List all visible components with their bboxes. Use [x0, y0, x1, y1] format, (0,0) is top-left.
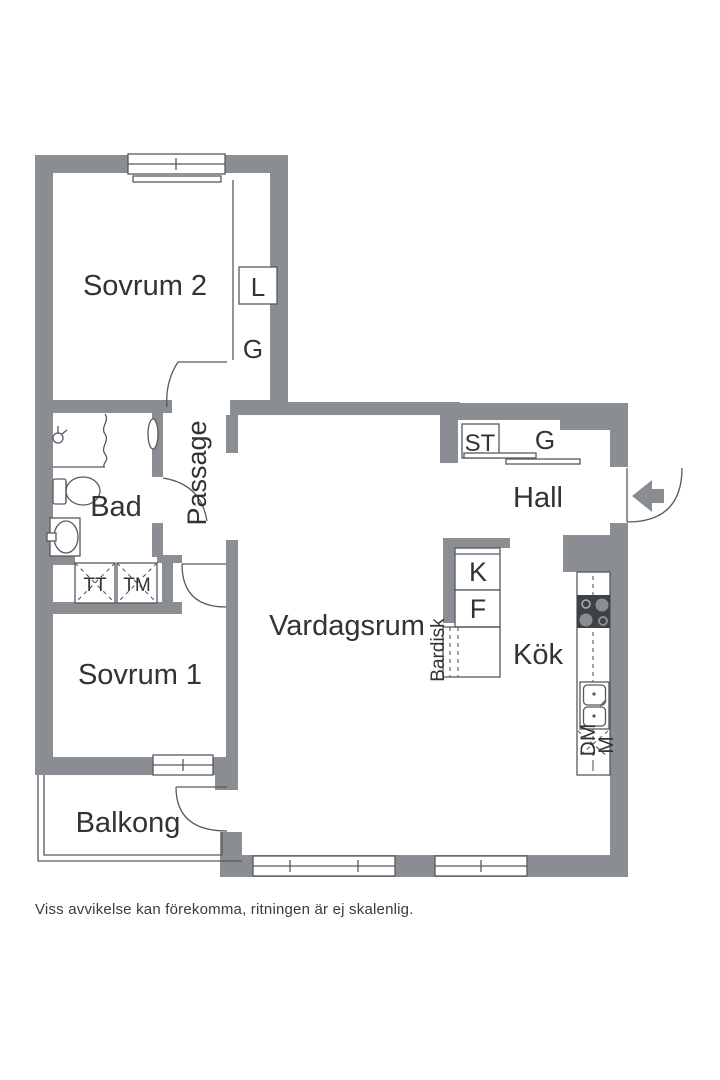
bathroom-sink-icon: [47, 518, 80, 556]
kitchen-sink-icon: [580, 682, 609, 729]
room-label-vardagsrum: Vardagsrum: [269, 610, 425, 642]
room-label-hall: Hall: [513, 482, 563, 514]
washer-label: TM: [123, 575, 150, 596]
wall-segment: [288, 402, 460, 415]
dryer-label: TT: [83, 575, 107, 596]
window-vardagsrum-right: [435, 856, 527, 876]
cleaning-closet-label: ST: [465, 430, 496, 457]
shower-icon: [53, 414, 107, 467]
wardrobe-sovrum2-label: G: [243, 334, 263, 364]
wall-segment: [230, 400, 288, 415]
floor-plan-drawing: Sovrum 2 Bad Passage Sovrum 1 Balkong Va…: [0, 0, 720, 1080]
wall-segment: [448, 403, 628, 420]
wall-segment: [440, 403, 458, 463]
wardrobe-hall-label: G: [535, 425, 555, 455]
fridge-label: K: [469, 557, 487, 587]
shower-curtain-line: [104, 414, 107, 467]
linen-closet-label: L: [251, 272, 265, 302]
wall-segment: [35, 400, 172, 413]
wall-segment: [560, 420, 628, 430]
wall-segment: [162, 563, 173, 604]
entry-arrow-icon: [632, 480, 664, 512]
wall-segment: [226, 415, 238, 453]
door-balkong: [176, 787, 227, 831]
room-label-sovrum2: Sovrum 2: [83, 270, 207, 302]
room-label-passage: Passage: [182, 420, 212, 525]
door-entry: [627, 468, 682, 522]
wall-segment: [443, 538, 455, 623]
door-sovrum1: [182, 564, 226, 607]
wall-segment: [35, 602, 182, 614]
bar-counter: [443, 627, 500, 677]
window-vardagsrum-left: [253, 856, 395, 876]
wall-segment: [226, 540, 238, 775]
room-label-kok: Kök: [513, 639, 563, 671]
stove-icon: [577, 595, 610, 628]
door-sovrum2: [167, 362, 227, 407]
wall-segment: [563, 535, 628, 572]
micro-label: M: [595, 736, 618, 754]
room-label-balkong: Balkong: [76, 807, 181, 839]
wall-segment: [610, 523, 628, 877]
freezer-label: F: [470, 594, 487, 624]
wall-segment: [152, 523, 163, 557]
room-label-bad: Bad: [90, 491, 142, 523]
mirror-icon: [148, 419, 158, 449]
room-label-sovrum1: Sovrum 1: [78, 659, 202, 691]
sliding-door-track: [506, 459, 580, 464]
bar-counter-label: Bardisk: [428, 618, 449, 682]
window-sovrum2: [128, 154, 225, 182]
wall-segment: [157, 555, 182, 563]
wall-segment: [443, 538, 510, 548]
disclaimer-text: Viss avvikelse kan förekomma, ritningen …: [35, 901, 414, 918]
window-sovrum1: [153, 755, 213, 775]
wall-segment: [215, 775, 238, 790]
floor-plan: Sovrum 2 Bad Passage Sovrum 1 Balkong Va…: [0, 0, 720, 1080]
wall-segment: [35, 155, 53, 775]
